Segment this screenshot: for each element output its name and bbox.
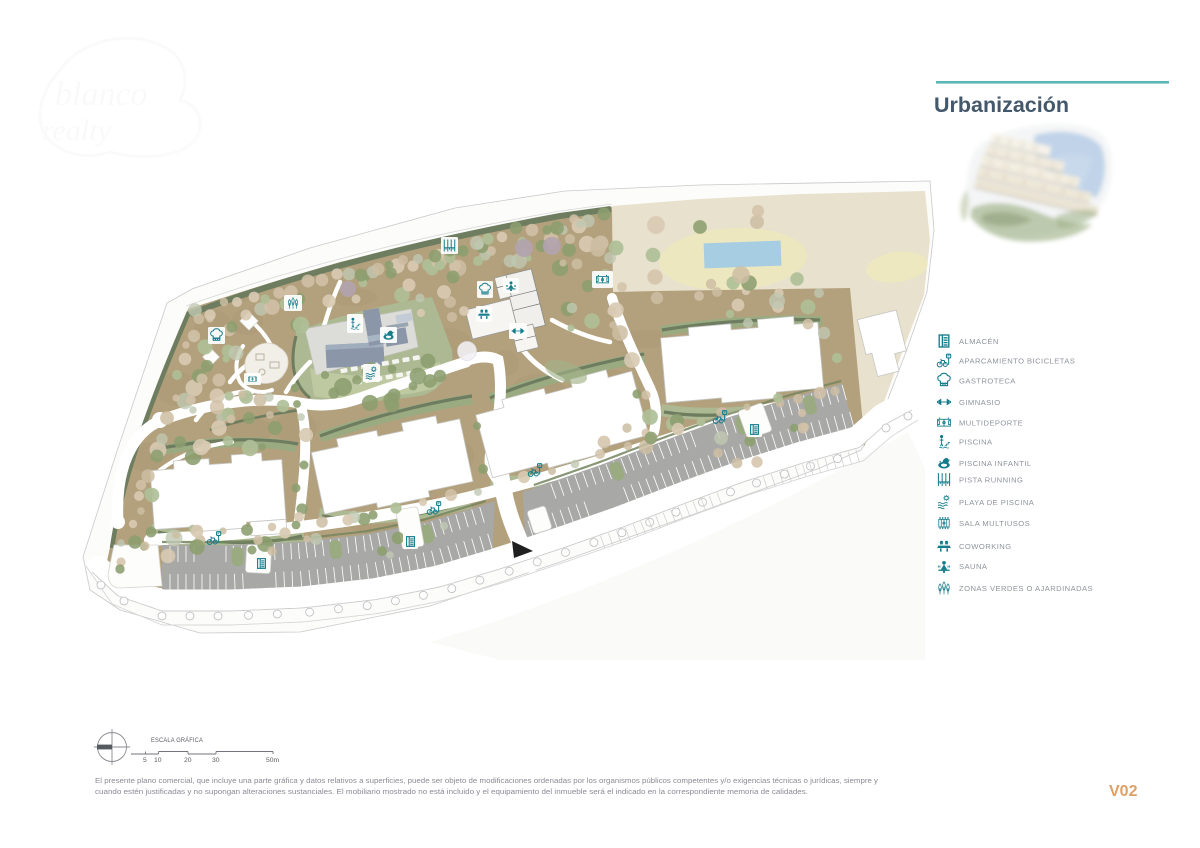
svg-text:SAUNA: SAUNA (959, 562, 988, 571)
svg-text:ZONAS VERDES O AJARDINADAS: ZONAS VERDES O AJARDINADAS (959, 584, 1093, 593)
svg-text:GIMNASIO: GIMNASIO (959, 398, 1001, 407)
svg-text:cuando estén justificadas y no: cuando estén justificadas y no supongan … (95, 787, 808, 796)
svg-text:20: 20 (184, 757, 192, 764)
svg-text:APARCAMIENTO BICICLETAS: APARCAMIENTO BICICLETAS (959, 357, 1075, 366)
svg-text:30: 30 (212, 757, 220, 764)
svg-text:5: 5 (143, 757, 147, 764)
svg-text:MULTIDEPORTE: MULTIDEPORTE (959, 419, 1023, 428)
svg-text:PISCINA INFANTIL: PISCINA INFANTIL (959, 459, 1032, 468)
svg-text:SALA MULTIUSOS: SALA MULTIUSOS (959, 519, 1030, 528)
svg-text:realty: realty (42, 114, 112, 147)
svg-text:PISCINA: PISCINA (959, 438, 993, 447)
svg-text:Urbanización: Urbanización (934, 93, 1069, 117)
svg-text:10: 10 (154, 757, 162, 764)
svg-text:V02: V02 (1109, 783, 1138, 800)
svg-text:El presente plano comercial, q: El presente plano comercial, que incluye… (95, 776, 878, 785)
svg-text:ALMACÉN: ALMACÉN (959, 337, 999, 346)
svg-text:GASTROTECA: GASTROTECA (959, 377, 1016, 386)
svg-text:COWORKING: COWORKING (959, 542, 1012, 551)
svg-text:ESCALA GRÁFICA: ESCALA GRÁFICA (151, 735, 203, 744)
svg-text:PISTA RUNNING: PISTA RUNNING (959, 476, 1023, 485)
svg-text:PLAYA DE PISCINA: PLAYA DE PISCINA (959, 498, 1035, 507)
svg-text:50m: 50m (266, 757, 280, 764)
svg-text:blanco: blanco (55, 76, 148, 113)
